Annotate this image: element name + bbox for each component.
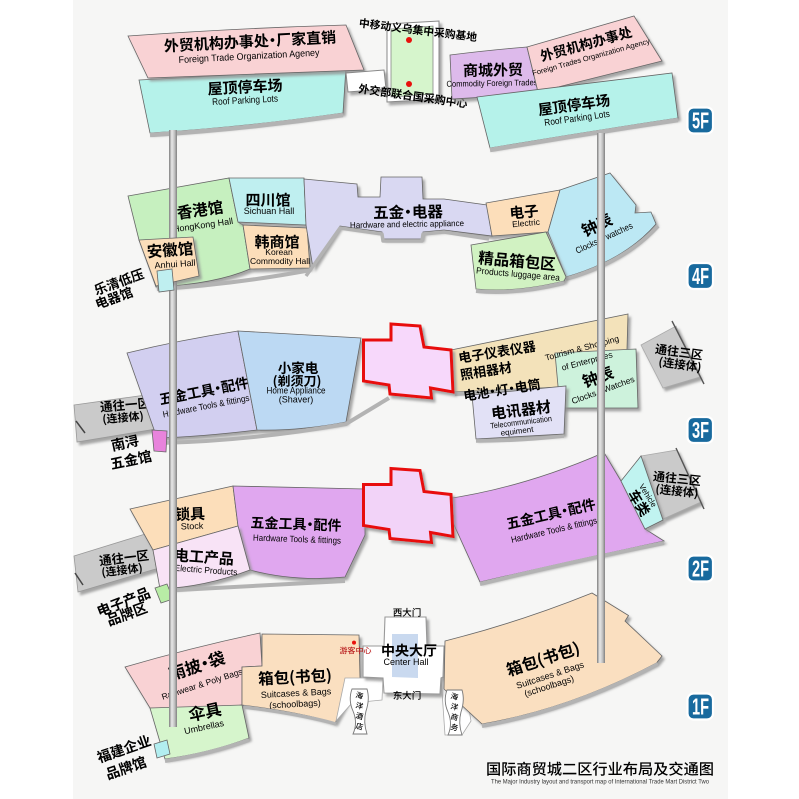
svg-text:1F: 1F [692, 694, 709, 720]
svg-text:Center Hall: Center Hall [383, 657, 428, 667]
svg-text:The Major Industry layout and: The Major Industry layout and transport … [491, 778, 709, 785]
svg-text:Commodity Hall: Commodity Hall [250, 256, 310, 266]
svg-text:Stock: Stock [181, 521, 204, 532]
svg-text:Hardware and electric applianc: Hardware and electric appliance [350, 218, 464, 230]
svg-text:2F: 2F [692, 556, 709, 582]
svg-text:Sichuan Hall: Sichuan Hall [244, 206, 295, 216]
svg-text:Commodity Foreign Trades: Commodity Foreign Trades [446, 77, 537, 89]
svg-text:3F: 3F [692, 417, 709, 443]
svg-text:(Shaver): (Shaver) [279, 395, 314, 405]
svg-text:4F: 4F [692, 263, 709, 289]
svg-text:5F: 5F [692, 108, 709, 134]
